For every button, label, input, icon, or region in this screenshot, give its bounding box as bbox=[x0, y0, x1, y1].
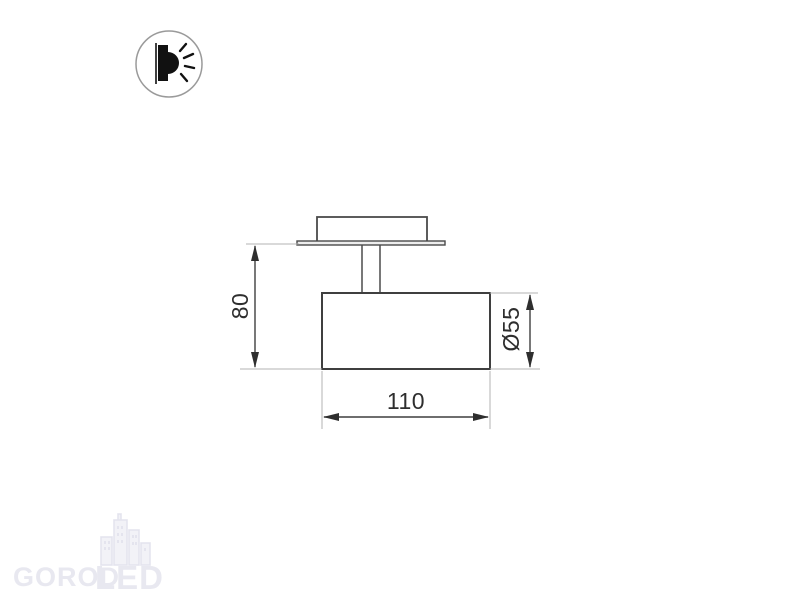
diagram-canvas: 80 Ø55 110 bbox=[0, 0, 800, 600]
fixture-drawing bbox=[297, 217, 490, 369]
stem bbox=[362, 245, 380, 293]
technical-drawing-svg: 80 Ø55 110 bbox=[0, 0, 800, 600]
arrow-down-icon bbox=[526, 352, 534, 368]
arrow-up-icon bbox=[526, 294, 534, 310]
arrow-left-icon bbox=[323, 413, 339, 421]
arrow-down-icon bbox=[251, 352, 259, 368]
light-type-badge bbox=[136, 31, 202, 97]
brand-text-led: LED bbox=[95, 559, 164, 596]
dim-width-label: 110 bbox=[387, 388, 425, 414]
mounting-plate bbox=[297, 241, 445, 245]
brand-watermark: GOROD LED bbox=[13, 514, 164, 596]
dim-diameter-label: Ø55 bbox=[498, 307, 524, 352]
dimension-diameter: Ø55 bbox=[490, 293, 540, 369]
dim-height-label: 80 bbox=[227, 293, 253, 320]
arrow-right-icon bbox=[473, 413, 489, 421]
dimension-height: 80 bbox=[227, 244, 322, 369]
dimension-width: 110 bbox=[322, 371, 490, 429]
lamp-body bbox=[322, 293, 490, 369]
driver-box bbox=[317, 217, 427, 242]
city-skyline-icon bbox=[101, 514, 150, 565]
arrow-up-icon bbox=[251, 245, 259, 261]
